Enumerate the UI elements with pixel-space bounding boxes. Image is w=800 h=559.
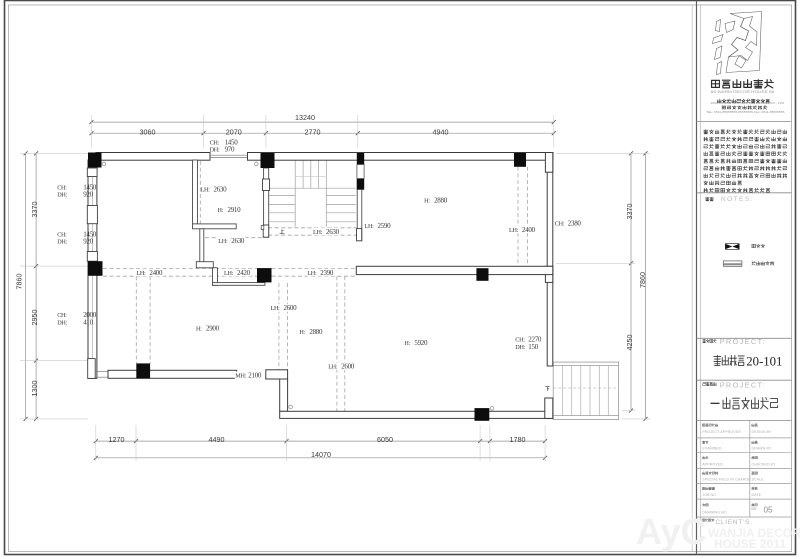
svg-text:PROJECT APPROVER: PROJECT APPROVER [702,430,741,434]
svg-text:LH:: LH: [509,227,519,234]
svg-text:20-101: 20-101 [746,354,782,368]
svg-text:66 WARM DECOR HOUSE 66: 66 WARM DECOR HOUSE 66 [711,90,774,94]
svg-text:LH:: LH: [313,229,323,236]
svg-text:CHECKED BY: CHECKED BY [752,462,777,466]
svg-text:MH:: MH: [235,373,246,380]
svg-text:DATE: DATE [752,493,762,497]
svg-text:2900: 2900 [206,325,220,333]
svg-text:H:: H: [424,197,430,204]
svg-text:JOB NO: JOB NO [702,493,716,497]
svg-text:LH:: LH: [201,187,211,194]
svg-text:13240: 13240 [295,113,315,122]
svg-text:2420: 2420 [237,269,251,277]
svg-text:2770: 2770 [305,127,321,136]
svg-text:970: 970 [225,145,235,153]
svg-text:H:: H: [404,340,410,347]
svg-text:LH:: LH: [328,364,338,371]
svg-text:4490: 4490 [209,435,225,444]
svg-text:920: 920 [83,238,93,246]
svg-text:6050: 6050 [377,435,393,444]
svg-text:2380: 2380 [568,220,582,228]
svg-text:LH:: LH: [136,270,146,277]
svg-text:SPECIAL FIELD IN CHARGE: SPECIAL FIELD IN CHARGE [702,478,751,482]
svg-text:CLIENT'S: CLIENT'S [716,519,751,526]
svg-text:DH:: DH: [57,239,67,246]
svg-text:H:: H: [299,329,305,336]
svg-text:3060: 3060 [140,127,156,136]
svg-text:3370: 3370 [625,204,634,220]
svg-text:DESIGN BY: DESIGN BY [752,430,773,434]
svg-text:LH:: LH: [365,223,375,230]
svg-text:7860: 7860 [15,274,24,290]
svg-text:NO.: NO. [752,507,758,511]
svg-text:DH:: DH: [515,344,525,351]
svg-text:1270: 1270 [109,435,125,444]
svg-text:LH:: LH: [224,270,234,277]
svg-text:PROJECT:: PROJECT: [720,337,766,346]
svg-text:2630: 2630 [326,228,340,236]
svg-text:CH:: CH: [555,221,565,228]
svg-text:2590: 2590 [378,222,392,230]
svg-text:CH:: CH: [57,232,67,239]
svg-text:5920: 5920 [414,339,428,347]
svg-text:SCALE: SCALE [752,478,765,482]
svg-text:NOTES:: NOTES: [721,196,754,203]
svg-text:1780: 1780 [510,435,526,444]
svg-text:DH:: DH: [57,319,67,326]
svg-text:410: 410 [83,318,93,326]
svg-text:2100: 2100 [248,372,262,380]
svg-text:150: 150 [528,343,538,351]
svg-text:2400: 2400 [522,226,536,234]
svg-text:2600: 2600 [341,363,355,371]
svg-text:2390: 2390 [320,269,334,277]
svg-text:2910: 2910 [228,206,242,214]
svg-text:1300: 1300 [30,381,39,397]
svg-text:2880: 2880 [434,196,448,204]
svg-text:H:: H: [218,207,224,214]
svg-text:WANJIAYIHE DECORATION DESIGN C: WANJIAYIHE DECORATION DESIGN CO., LTD [711,101,785,105]
svg-text:PROJECT:: PROJECT: [720,380,766,389]
svg-text:05: 05 [764,505,774,514]
svg-text:2880: 2880 [309,328,323,336]
svg-text:14070: 14070 [311,450,331,459]
svg-text:HOUSE 2011: HOUSE 2011 [714,537,786,551]
svg-text:4250: 4250 [625,335,634,351]
svg-text:2070: 2070 [226,127,242,136]
svg-text:4940: 4940 [433,127,449,136]
svg-text:2400: 2400 [149,269,163,277]
svg-text:APPROVED: APPROVED [702,462,723,466]
svg-text:CH:: CH: [57,184,67,191]
svg-text:7860: 7860 [638,272,647,288]
svg-text:AyC: AyC [636,511,707,552]
svg-text:TEL: 0511-85555555 85555555 F: TEL: 0511-85555555 85555555 Fax: 0511-85… [706,110,785,114]
svg-text:2630: 2630 [214,186,228,194]
svg-text:LH:: LH: [307,270,317,277]
svg-text:DH:: DH: [210,146,220,153]
svg-text:920: 920 [83,191,93,199]
svg-text:DRAWN BY: DRAWN BY [752,447,772,451]
svg-text:3370: 3370 [30,202,39,218]
svg-text:EXAMINED: EXAMINED [702,447,722,451]
svg-text:LH:: LH: [271,305,281,312]
svg-text:DH:: DH: [57,192,67,199]
svg-text:H:: H: [196,326,202,333]
svg-text:2630: 2630 [231,237,245,245]
svg-text:CH:: CH: [515,336,525,343]
svg-text:CH:: CH: [57,312,67,319]
svg-text:2950: 2950 [30,310,39,326]
svg-text:2600: 2600 [284,304,298,312]
svg-text:LH:: LH: [218,238,228,245]
